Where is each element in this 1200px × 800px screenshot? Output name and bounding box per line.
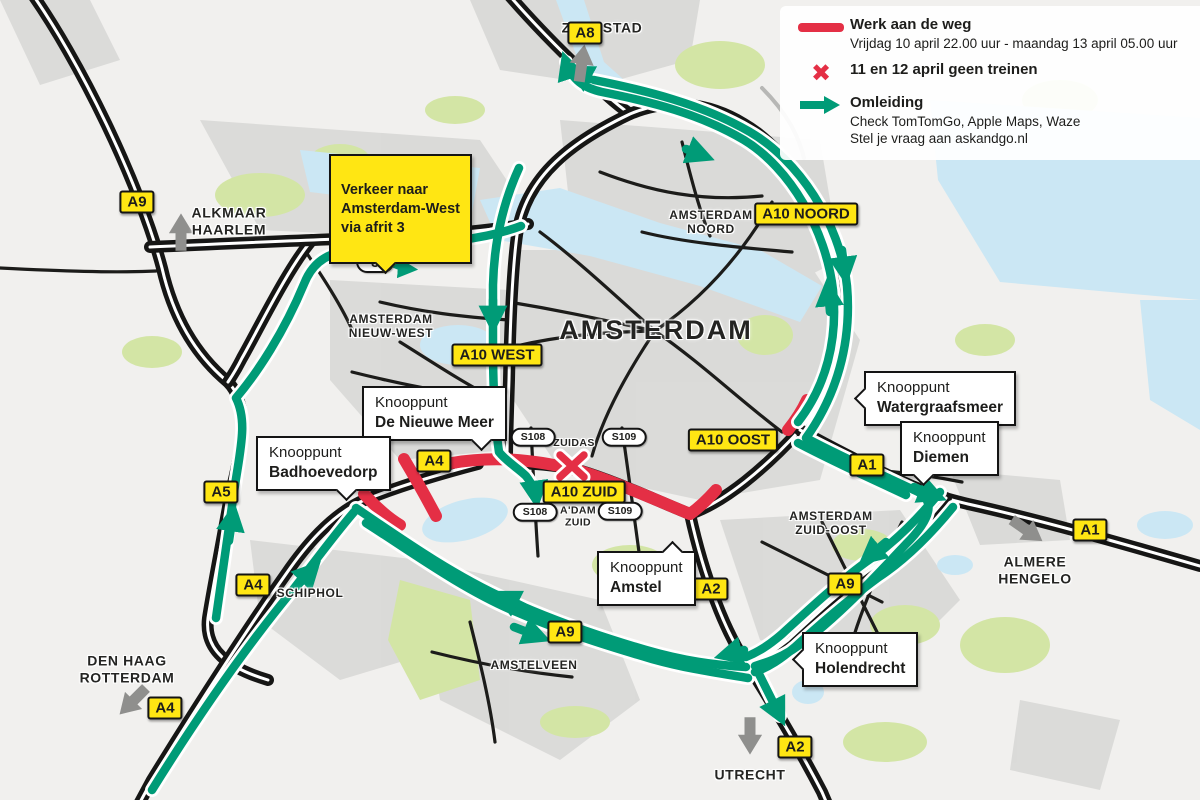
place-label-amstelveen: AMSTELVEEN — [490, 658, 577, 672]
traffic-note-callout: Verkeer naar Amsterdam-West via afrit 3 — [329, 154, 472, 264]
place-label-utrecht: UTRECHT — [714, 767, 785, 784]
junction-callout-holendrecht: Knooppunt Holendrecht — [802, 632, 918, 687]
no-trains-x-icon: ✖ — [792, 61, 850, 85]
junction-callout-de-nieuwe-meer: Knooppunt De Nieuwe Meer — [362, 386, 507, 441]
place-label-almere-hengelo: ALMERE HENGELO — [998, 553, 1071, 586]
legend-trains-title: 11 en 12 april geen treinen — [850, 61, 1038, 85]
shield-a4-southwest: A4 — [147, 697, 182, 720]
junction-name: Amstel — [610, 578, 683, 598]
roadwork-line-icon — [792, 16, 850, 52]
shield-a4-ring: A4 — [416, 450, 451, 473]
legend-roadwork-title: Werk aan de weg — [850, 16, 1177, 35]
traffic-note-text: Verkeer naar Amsterdam-West via afrit 3 — [341, 182, 460, 236]
place-label-alkmaar-haarlem: ALKMAAR HAARLEM — [192, 204, 267, 237]
shield-a10-oost: A10 OOST — [688, 429, 778, 452]
place-label-schiphol: SCHIPHOL — [277, 586, 344, 600]
junction-callout-watergraafsmeer: Knooppunt Watergraafsmeer — [864, 371, 1016, 426]
place-label-amsterdam: AMSTERDAM — [559, 315, 753, 347]
legend-detour-line1: Check TomTomGo, Apple Maps, Waze — [850, 113, 1080, 131]
place-label-amsterdam-zuid-oost: AMSTERDAM ZUID-OOST — [789, 509, 872, 537]
junction-name: Holendrecht — [815, 659, 905, 679]
shield-a4-schiphol: A4 — [235, 574, 270, 597]
junction-prefix: Knooppunt — [375, 394, 448, 411]
junction-prefix: Knooppunt — [815, 640, 888, 657]
junction-name: Watergraafsmeer — [877, 398, 1003, 418]
shield-a2-south: A2 — [777, 736, 812, 759]
place-label-zuidas: ZUIDAS — [553, 437, 594, 449]
detour-arrow-icon — [792, 94, 850, 148]
shield-a2-amstel: A2 — [693, 578, 728, 601]
place-label-amsterdam-nieuw-west: AMSTERDAM NIEUW-WEST — [349, 312, 433, 340]
legend-detour-line2: Stel je vraag aan askandgo.nl — [850, 130, 1080, 148]
legend-trains-row: ✖ 11 en 12 april geen treinen — [792, 61, 1200, 85]
junction-callout-badhoevedorp: Knooppunt Badhoevedorp — [256, 436, 391, 491]
junction-name: Badhoevedorp — [269, 463, 378, 483]
junction-name: De Nieuwe Meer — [375, 413, 494, 433]
legend-roadwork-row: Werk aan de weg Vrijdag 10 april 22.00 u… — [792, 16, 1200, 52]
shield-a9-amstelveen: A9 — [547, 621, 582, 644]
shield-a9-northwest: A9 — [119, 191, 154, 214]
shield-a5-west: A5 — [203, 481, 238, 504]
shield-a8: A8 — [567, 22, 602, 45]
shield-a10-west: A10 WEST — [451, 344, 542, 367]
shield-s108-north: S108 — [511, 428, 556, 447]
legend: Werk aan de weg Vrijdag 10 april 22.00 u… — [780, 6, 1200, 160]
place-label-adam-zuid: A'DAM ZUID — [560, 505, 596, 530]
shield-s109-south: S109 — [598, 502, 643, 521]
junction-prefix: Knooppunt — [269, 444, 342, 461]
legend-detour-title: Omleiding — [850, 94, 1080, 113]
shield-a10-noord: A10 NOORD — [754, 203, 858, 226]
place-label-amsterdam-noord: AMSTERDAM NOORD — [669, 208, 752, 236]
junction-prefix: Knooppunt — [877, 379, 950, 396]
legend-roadwork-dates: Vrijdag 10 april 22.00 uur - maandag 13 … — [850, 35, 1177, 53]
shield-a10-zuid: A10 ZUID — [543, 481, 626, 504]
shield-a1-diemen: A1 — [849, 454, 884, 477]
no-trains-x-icon — [560, 455, 584, 477]
junction-prefix: Knooppunt — [913, 429, 986, 446]
shield-a1-east: A1 — [1072, 519, 1107, 542]
shield-a9-zuidoost: A9 — [827, 573, 862, 596]
junction-callout-amstel: Knooppunt Amstel — [597, 551, 696, 606]
roadwork-map: ZAANSTAD ALKMAAR HAARLEM AMSTERDAM AMSTE… — [0, 0, 1200, 800]
junction-callout-diemen: Knooppunt Diemen — [900, 421, 999, 476]
legend-detour-row: Omleiding Check TomTomGo, Apple Maps, Wa… — [792, 94, 1200, 148]
place-label-den-haag-rotterdam: DEN HAAG ROTTERDAM — [80, 652, 175, 685]
shield-s108-south: S108 — [513, 503, 558, 522]
shield-s109-north: S109 — [602, 428, 647, 447]
